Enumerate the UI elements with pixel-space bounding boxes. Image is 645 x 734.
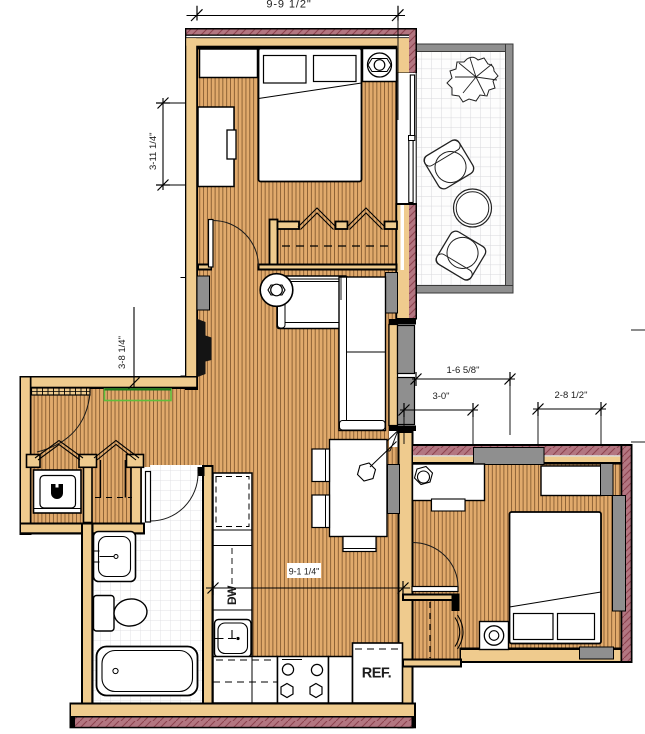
svg-text:3-11 1/4": 3-11 1/4" <box>148 132 159 170</box>
svg-text:9-1 1/4": 9-1 1/4" <box>289 567 320 577</box>
svg-text:3-8 1/4": 3-8 1/4" <box>117 336 128 369</box>
svg-text:REF.: REF. <box>362 666 392 682</box>
svg-text:2-8 1/2": 2-8 1/2" <box>555 390 588 401</box>
svg-text:3-0": 3-0" <box>432 391 449 402</box>
svg-text:1-6 5/8": 1-6 5/8" <box>447 365 480 376</box>
svg-text:9-9 1/2": 9-9 1/2" <box>266 0 311 11</box>
